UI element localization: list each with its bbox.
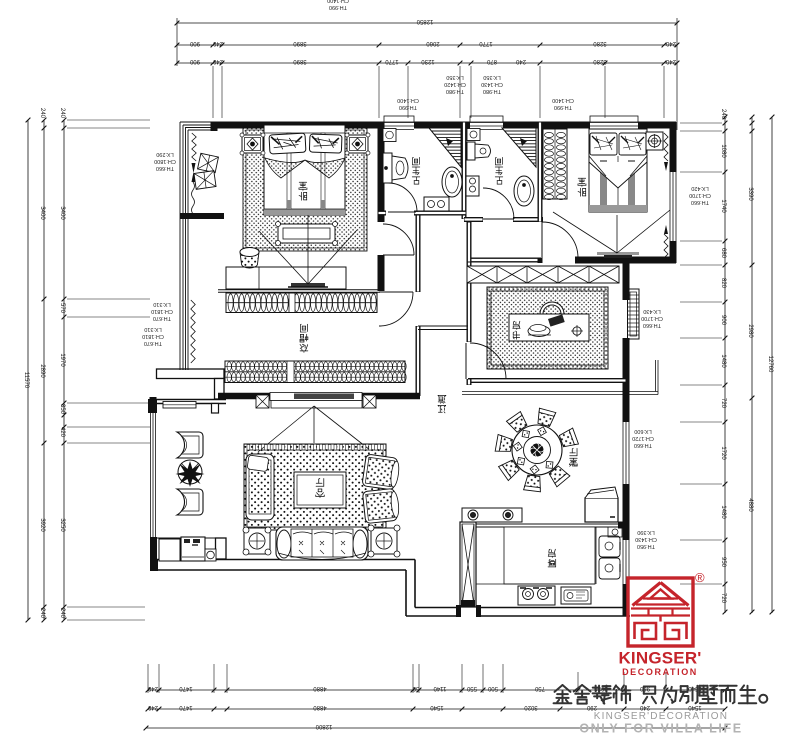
svg-text:550: 550 [466,685,477,691]
svg-text:12760: 12760 [767,356,773,373]
svg-text:LX:390: LX:390 [637,529,654,535]
svg-text:KINGSER': KINGSER' [618,649,701,668]
svg-text:900: 900 [189,58,200,64]
svg-text:DECORATION: DECORATION [622,667,698,677]
svg-text:3280: 3280 [593,40,607,46]
svg-text:240: 240 [639,704,650,710]
svg-text:CH:1400: CH:1400 [397,97,419,103]
svg-text:LX:600: LX:600 [634,428,651,434]
svg-text:LX:310: LX:310 [153,301,170,307]
svg-text:KINGSER'DECORATION: KINGSER'DECORATION [594,711,728,722]
svg-text:240: 240 [665,58,676,64]
svg-text:3400: 3400 [59,206,65,220]
svg-text:820: 820 [720,278,726,289]
svg-text:1140: 1140 [433,685,447,691]
svg-text:350: 350 [59,404,65,415]
svg-text:CH:1720: CH:1720 [632,435,654,441]
svg-text:3280: 3280 [593,58,607,64]
svg-text:720: 720 [720,398,726,409]
svg-text:500: 500 [487,685,498,691]
svg-text:CH:1810: CH:1810 [142,333,164,339]
svg-text:2890: 2890 [39,364,45,378]
svg-text:TH:980: TH:980 [446,88,464,94]
svg-text:12800: 12800 [315,723,332,729]
svg-text:®: ® [695,570,705,585]
svg-text:240: 240 [665,40,676,46]
svg-text:1740: 1740 [720,199,726,213]
svg-text:1480: 1480 [720,505,726,519]
svg-text:870: 870 [486,58,497,64]
svg-text:1470: 1470 [179,704,193,710]
svg-text:1480: 1480 [720,354,726,368]
svg-text:4880: 4880 [313,685,327,691]
svg-text:3920: 3920 [39,518,45,532]
svg-text:1230: 1230 [421,58,435,64]
svg-text:1080: 1080 [720,144,726,158]
svg-text:240: 240 [720,109,726,120]
svg-text:TH:660: TH:660 [634,442,652,448]
svg-text:TH:670: TH:670 [144,340,162,346]
svg-text:240: 240 [59,608,65,619]
svg-text:TH:660: TH:660 [691,199,709,205]
svg-text:1720: 1720 [720,446,726,460]
svg-text:240: 240 [212,58,223,64]
svg-text:3020: 3020 [524,704,538,710]
svg-text:2980: 2980 [747,324,753,338]
svg-text:3890: 3890 [293,58,307,64]
svg-text:750: 750 [534,685,545,691]
svg-text:CH:1700: CH:1700 [689,192,711,198]
svg-text:720: 720 [720,593,726,604]
svg-text:1540: 1540 [688,704,702,710]
svg-text:240: 240 [39,608,45,619]
svg-text:680: 680 [720,248,726,259]
svg-text:4880: 4880 [747,498,753,512]
svg-text:4880: 4880 [313,704,327,710]
svg-text:TH:670: TH:670 [153,315,171,321]
svg-text:1970: 1970 [59,353,65,367]
svg-text:1770: 1770 [385,58,399,64]
svg-text:240: 240 [147,685,158,691]
svg-text:3890: 3890 [293,40,307,46]
svg-text:1540: 1540 [430,704,444,710]
svg-text:950: 950 [720,557,726,568]
svg-text:1770: 1770 [479,40,493,46]
svg-text:420: 420 [59,427,65,438]
svg-text:CH:1420: CH:1420 [444,81,466,87]
svg-text:CH:1430: CH:1430 [635,536,657,542]
svg-text:LX:350: LX:350 [446,74,463,80]
svg-text:LX:430: LX:430 [643,308,660,314]
svg-text:570: 570 [59,303,65,314]
svg-text:240: 240 [212,40,223,46]
svg-text:12850: 12850 [416,18,433,24]
svg-text:TH:990: TH:990 [399,104,417,110]
svg-text:TH:980: TH:980 [483,88,501,94]
svg-text:3400: 3400 [39,206,45,220]
svg-text:290: 290 [586,704,597,710]
svg-text:CH:1400: CH:1400 [327,0,349,3]
svg-text:LX:420: LX:420 [691,185,708,191]
svg-text:TH:990: TH:990 [329,4,347,10]
svg-text:TH:660: TH:660 [643,322,661,328]
svg-text:900: 900 [720,315,726,326]
svg-text:LX:310: LX:310 [144,326,161,332]
svg-text:2060: 2060 [426,40,440,46]
svg-text:TH:950: TH:950 [637,543,655,549]
svg-text:CH:1810: CH:1810 [151,308,173,314]
svg-text:240: 240 [147,704,158,710]
svg-text:CH:1430: CH:1430 [481,81,503,87]
svg-text:3390: 3390 [747,187,753,201]
svg-text:240: 240 [59,108,65,119]
svg-text:3250: 3250 [59,518,65,532]
svg-text:240: 240 [39,108,45,119]
svg-text:TH:990: TH:990 [554,104,572,110]
svg-text:240: 240 [515,58,526,64]
svg-text:11570: 11570 [23,372,29,389]
svg-text:LX:350: LX:350 [483,74,500,80]
svg-text:CH:1800: CH:1800 [154,158,176,164]
svg-text:TH:660: TH:660 [156,165,174,171]
svg-text:CH:1400: CH:1400 [552,97,574,103]
svg-text:LX:290: LX:290 [156,151,173,157]
svg-text:CH:1700: CH:1700 [641,315,663,321]
svg-text:1470: 1470 [179,685,193,691]
svg-text:ONLY FOR VILLA LIFE: ONLY FOR VILLA LIFE [579,722,742,736]
svg-text:900: 900 [189,40,200,46]
